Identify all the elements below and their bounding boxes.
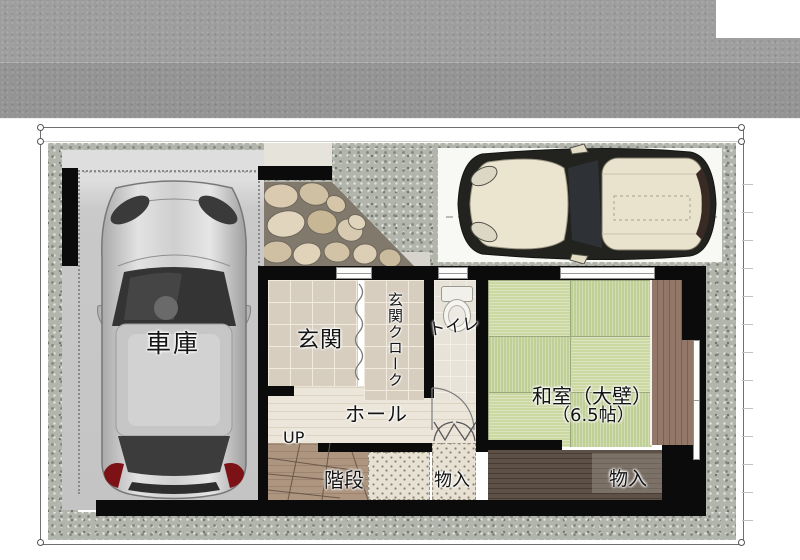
boundary-marker [738,124,745,131]
parked-car [452,144,722,264]
boundary-marker [738,539,745,546]
stone-path [262,180,416,269]
garage-label: 車庫 [146,324,200,360]
boundary-marker [37,124,44,131]
boundary-marker [738,138,745,145]
floorplan-canvas: 車庫 玄関 玄関クローク トイレ ホール UP 階段 物入 和室（大壁） （6.… [0,0,800,560]
hall-label: ホール [345,398,408,427]
storage-hall-label: 物入 [434,466,470,492]
entrance-cloak-label: 玄関クローク [385,292,406,388]
folding-door-icon [434,422,476,441]
boundary-marker [37,138,44,145]
boundary-marker [37,539,44,546]
washitsu-label-line2: （6.5帖） [552,401,635,427]
stairs-up-label: UP [283,428,304,447]
storage-washitsu-label: 物入 [609,464,647,491]
entrance-label: 玄関 [297,322,343,354]
door-arc [432,388,474,430]
opening-wavy-line [356,284,363,380]
stairs-label: 階段 [324,464,364,493]
